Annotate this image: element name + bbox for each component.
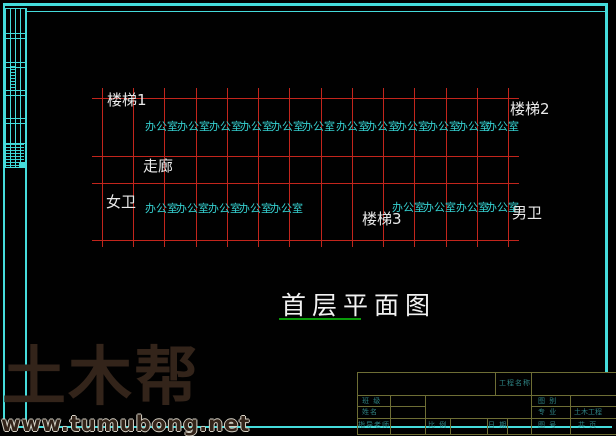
grid-line-vertical <box>352 88 353 247</box>
office-room-label: 办公室 <box>177 121 210 132</box>
grid-line-horizontal <box>92 98 519 99</box>
date-label: 日 期 <box>488 421 507 429</box>
office-room-label: 办公室 <box>176 203 209 214</box>
room-label-female-wc: 女卫 <box>106 194 136 210</box>
cad-drawing-canvas: 办公室办公室办公室办公室办公室办公室办公室办公室办公室办公室办公室办公室办公室办… <box>0 0 616 436</box>
office-room-label: 办公室 <box>456 202 489 213</box>
watermark-logo: 土木帮 <box>2 346 200 410</box>
office-room-label: 办公室 <box>209 121 242 132</box>
office-room-label: 办公室 <box>240 121 273 132</box>
grid-line-vertical <box>133 88 134 247</box>
grid-line-vertical <box>477 88 478 247</box>
office-room-label: 办公室 <box>271 121 304 132</box>
grid-line-vertical <box>196 88 197 247</box>
grid-line-vertical <box>102 88 103 247</box>
room-label-stair-1: 楼梯1 <box>107 92 147 108</box>
grid-line-vertical <box>289 88 290 247</box>
watermark-url: www.tumubong.net <box>1 413 250 435</box>
category-label: 图 别 <box>538 397 557 405</box>
grid-line-vertical <box>258 88 259 247</box>
grid-line-horizontal <box>92 183 519 184</box>
office-room-label: 办公室 <box>336 121 369 132</box>
office-room-label: 办公室 <box>239 203 272 214</box>
grid-line-vertical <box>446 88 447 247</box>
office-room-label: 办公室 <box>208 203 241 214</box>
major-label: 专 业 <box>538 408 557 416</box>
grid-line-horizontal <box>92 240 519 241</box>
class-label: 班 级 <box>362 397 381 405</box>
drawing-title: 首层平面图 <box>281 293 436 319</box>
advisor-label: 指导老师 <box>358 421 390 429</box>
room-label-stair-2: 楼梯2 <box>510 101 550 117</box>
room-label-stair-3: 楼梯3 <box>362 211 402 227</box>
scale-label: 比 例 <box>428 421 447 429</box>
office-room-label: 办公室 <box>145 203 178 214</box>
office-room-label: 办公室 <box>486 121 519 132</box>
pages-label: 共 页 <box>578 421 597 429</box>
office-room-label: 办公室 <box>270 203 303 214</box>
name-label: 姓名 <box>362 408 378 416</box>
room-label-corridor: 走廊 <box>143 158 173 174</box>
room-label-male-wc: 男卫 <box>512 205 542 221</box>
grid-line-vertical <box>321 88 322 247</box>
office-room-label: 办公室 <box>427 121 460 132</box>
grid-line-vertical <box>414 88 415 247</box>
grid-line-vertical <box>508 88 509 247</box>
office-room-label: 办公室 <box>423 202 456 213</box>
office-room-label: 办公室 <box>302 121 335 132</box>
office-room-label: 办公室 <box>145 121 178 132</box>
office-room-label: 办公室 <box>366 121 399 132</box>
major-value: 土木工程 <box>574 408 602 416</box>
number-label: 图 号 <box>538 421 557 429</box>
grid-line-vertical <box>227 88 228 247</box>
drawing-title-underline <box>279 318 361 320</box>
project-name-label: 工程名称 <box>499 379 531 387</box>
office-room-label: 办公室 <box>396 121 429 132</box>
